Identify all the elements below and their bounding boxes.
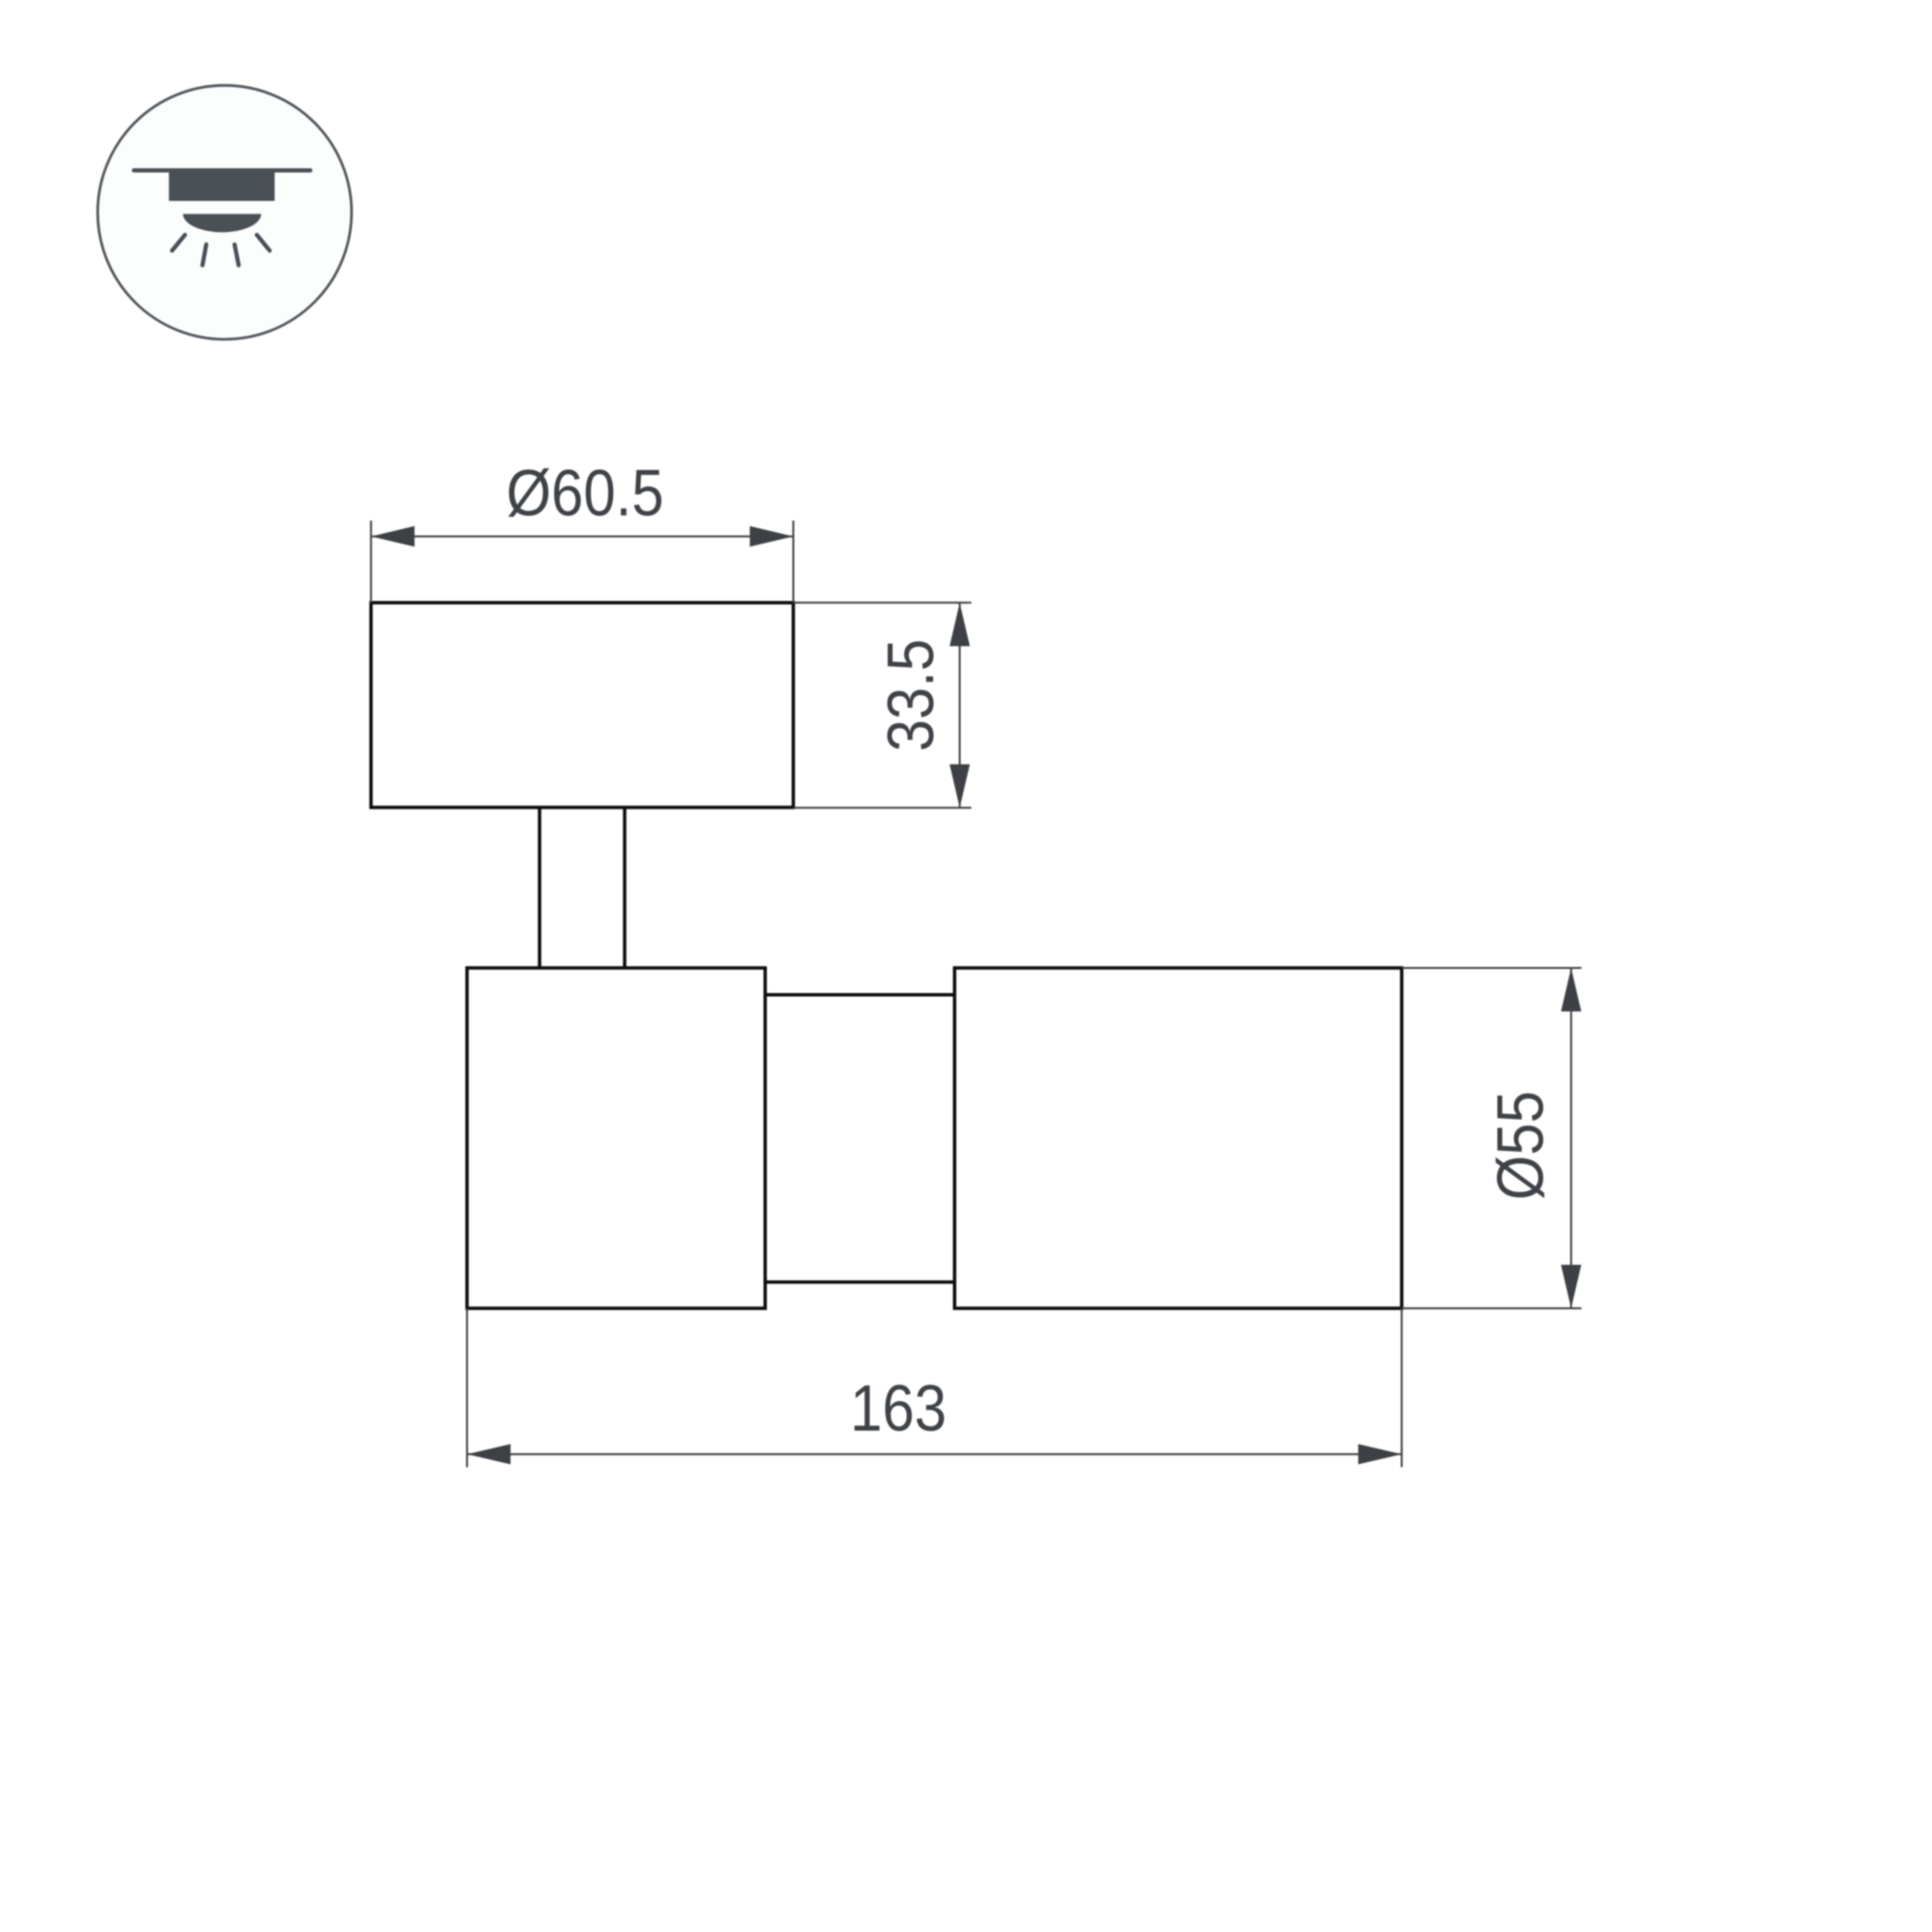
- svg-text:33.5: 33.5: [873, 639, 947, 751]
- svg-text:163: 163: [850, 1371, 947, 1445]
- svg-text:Ø55: Ø55: [1483, 1091, 1557, 1200]
- svg-text:Ø60.5: Ø60.5: [506, 455, 663, 529]
